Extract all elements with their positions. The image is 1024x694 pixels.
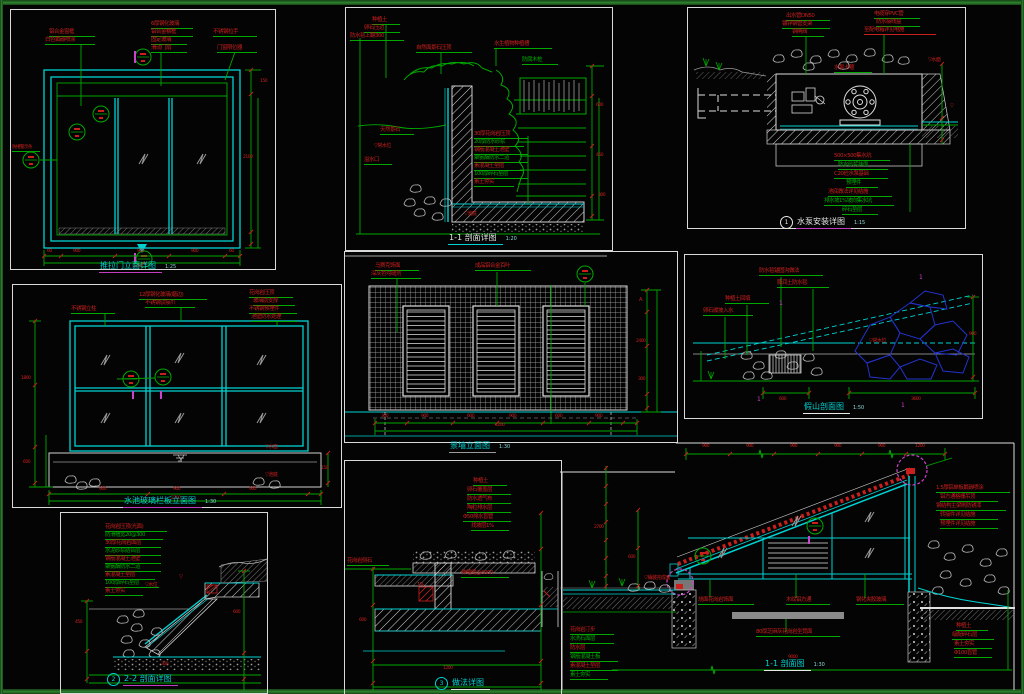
annotation-label: 钢结构主梁刷防锈漆 xyxy=(936,504,1006,511)
door-track xyxy=(59,228,225,234)
annotation-label: 900 xyxy=(173,488,180,493)
door-inner-frame xyxy=(40,44,235,235)
annotation-label: 60 xyxy=(229,250,234,255)
annotation-label: 防撞警示条 xyxy=(12,146,40,152)
suction-pipe-dashed xyxy=(698,95,776,111)
annotation-label: 花岗岩压顶(光面) xyxy=(105,525,167,532)
annotation-label: ▽ xyxy=(179,575,182,580)
annotation-label: A xyxy=(639,298,642,303)
annotation-label: 防水层 xyxy=(570,646,600,653)
annotation-label: 100厚碎石垫层 xyxy=(474,172,528,179)
annotation-label: 150 xyxy=(321,467,328,472)
annotation-label: 30厚花岗岩压顶 xyxy=(474,132,528,139)
title-scale: 1:30 xyxy=(205,499,216,505)
annotation-label: 450 xyxy=(596,154,603,159)
annotation-label: 1.5厚铝单板氟碳喷涂 xyxy=(936,486,1010,493)
annotation-label: 300 xyxy=(638,378,645,383)
annotation-label: 滑动门扇 xyxy=(151,46,187,53)
annotation-label: 600 xyxy=(779,398,786,403)
annotation-label: 12厚钢化玻璃(磨边) xyxy=(139,293,207,300)
annotation-label: 水泥砂浆结合层 xyxy=(105,549,161,556)
annotation-label: 出水管DN50 xyxy=(786,14,830,21)
annotation-label: 钢筋混凝土池壁 xyxy=(474,148,528,155)
panel-title-text: 1-1 剖面详图 xyxy=(448,232,503,245)
title-scale: 1:30 xyxy=(814,662,825,668)
annotation-label: 1200 xyxy=(915,445,924,450)
annotation-label: 花岗岩压顶 xyxy=(249,291,293,298)
anchor-trench xyxy=(769,355,801,373)
annotation-label: 防滑槽宽20@300 xyxy=(105,533,163,540)
partial-frame xyxy=(560,443,1014,690)
annotation-label: 碎石垫层 xyxy=(842,208,878,215)
annotation-label: 铝方通格栅吊顶 xyxy=(940,495,998,502)
annotation-label: 素土夯实 xyxy=(954,642,992,649)
annotation-label: 600 xyxy=(359,619,366,624)
panel-title: 假山剖面图1:50 xyxy=(803,401,864,414)
annotation-label: 150 xyxy=(260,80,267,85)
annotation-label: 80厚芝麻灰花岗岩坐凳面 xyxy=(756,630,840,637)
dims xyxy=(29,321,328,505)
annotation-label: 不锈钢拉手 xyxy=(213,30,257,37)
annotation-label: 900 xyxy=(137,250,144,255)
louver-slats xyxy=(768,543,828,568)
annotation-label: 素土夯实 xyxy=(570,673,608,680)
annotation-label: ▽水位 xyxy=(145,583,157,588)
pit-outline xyxy=(776,74,922,130)
annotation-label: ▽水面 xyxy=(265,445,277,450)
annotation-label: 自然面景石压顶 xyxy=(416,46,472,53)
annotation-label: 900 xyxy=(191,250,198,255)
detail-number-bubble: 2 xyxy=(107,673,120,686)
annotation-label: 预埋件 xyxy=(846,181,878,188)
panel-title: 推拉门立面详图1:25 xyxy=(99,260,176,273)
annotation-label: 素混凝土垫层 xyxy=(570,664,618,671)
panel-glass-screen-elevation: 不锈钢立柱12厚钢化玻璃(磨边)不锈钢驳接爪花岗岩压顶玻璃肋支撑不锈钢预埋件池壁… xyxy=(12,284,342,508)
screen-frame xyxy=(70,321,308,451)
panel-title-text: 假山剖面图 xyxy=(803,401,850,414)
annotation-label: ▽水面 xyxy=(928,58,940,63)
sloped-wall xyxy=(145,599,217,655)
annotation-label: 20厚防水砂浆 xyxy=(474,140,524,147)
annotation-label: 卵石缓坡入水 xyxy=(703,309,753,316)
annotation-label: 级配碎石层 xyxy=(952,633,994,640)
title-scale: 1:15 xyxy=(854,220,865,226)
title-scale: 1:30 xyxy=(499,444,510,450)
annotation-label: 成品铝合金百叶 xyxy=(475,264,531,271)
panel-title: 景墙立面图1:30 xyxy=(449,440,510,453)
annotation-label: 马赛克饰面 xyxy=(375,264,419,271)
annotation-label: 天然景石 xyxy=(380,128,414,135)
annotation-label: 水生植物种植槽 xyxy=(494,42,552,49)
annotation-label: 钢筋混凝土池壁 xyxy=(105,557,161,564)
annotation-label: 卵石压边 xyxy=(364,26,400,33)
annotation-label: 溢水口 xyxy=(364,158,392,165)
rockery-drawing xyxy=(685,255,982,418)
annotation-label: 白色氟碳喷涂 xyxy=(45,38,95,45)
annotation-label: ▽池底 xyxy=(464,212,476,217)
annotation-label: 电缆穿PVC管 xyxy=(874,12,920,19)
annotation-label: 铜闸阀 xyxy=(792,30,824,37)
subgrade xyxy=(375,609,541,631)
red-crosshatch xyxy=(419,587,433,601)
annotation-label: 防水砂浆抹面 xyxy=(838,163,888,170)
annotation-label: 卵石覆盖层 xyxy=(467,488,511,495)
annotation-label: 500×500集水坑 xyxy=(834,154,890,161)
annotation-label: 素土夯实 xyxy=(474,180,514,187)
annotation-label: 600 xyxy=(628,556,635,561)
panel-title-text: 做法详图 xyxy=(451,677,490,690)
annotation-label: 水洗石面层 xyxy=(570,637,614,644)
panel-rockery-section: 防水毯锚固沟做法膨润土防水毯种植土回填卵石缓坡入水▽常水位11116003600… xyxy=(684,254,983,419)
valve-fittings xyxy=(792,88,825,113)
annotation-label: 种植土 xyxy=(956,624,988,631)
louver-openings xyxy=(403,306,589,396)
annotation-label: 素土夯实 xyxy=(105,589,143,596)
title-scale: 1:50 xyxy=(853,405,864,411)
annotation-label: 素混凝土垫层 xyxy=(474,164,524,171)
annotation-label: 钢筋混凝土板 xyxy=(570,655,618,662)
cad-model-space[interactable]: 铝合金窗框白色氟碳喷涂6厚钢化玻璃铝合金横框固定玻璃滑动门扇不锈钢拉手门窗限位器… xyxy=(0,0,1024,694)
annotation-label: 种植土 xyxy=(473,479,507,486)
annotation-label: 聚氨酯防水二道 xyxy=(474,156,528,163)
dimension-lines xyxy=(44,70,261,266)
annotation-label: 600 xyxy=(23,461,30,466)
pump-drawing xyxy=(688,8,965,228)
water-symbol xyxy=(173,455,187,461)
glass-wall xyxy=(678,485,912,579)
annotation-label: 300 xyxy=(381,415,388,420)
mid-leaders xyxy=(710,574,865,598)
annotation-label: C20砼水泵基础 xyxy=(834,172,888,179)
annotation-label: 600 xyxy=(467,415,474,420)
annotation-label: 1800 xyxy=(21,377,30,382)
annotation-label: 聚氨酯防水二道 xyxy=(105,565,161,572)
annotation-label: 防水接线盒 xyxy=(876,20,920,27)
panel-sliding-door-elevation: 铝合金窗框白色氟碳喷涂6厚钢化玻璃铝合金横框固定玻璃滑动门扇不锈钢拉手门窗限位器… xyxy=(10,9,276,270)
panel-pergola-section: 90090090090090012001.5厚铝单板氟碳喷涂铝方通格栅吊顶钢结构… xyxy=(560,440,1016,692)
annotation-label: 池底做法详见结施 xyxy=(828,190,892,197)
annotation-label: 种植土回填 xyxy=(725,297,769,304)
annotation-label: 防水毯上翻300 xyxy=(350,34,404,41)
panel-planter-edge-detail: 种植土卵石覆盖层防水透气布陶粒排水层Φ50排水盲管找坡层1%花岗岩侧石伸缩缝@6… xyxy=(344,460,562,694)
annotation-label: 900 xyxy=(834,445,841,450)
panel-title-text: 景墙立面图 xyxy=(449,440,496,453)
panel-title: 1-1 剖面详图1:20 xyxy=(448,232,517,245)
annotation-label: 450 xyxy=(75,621,82,626)
rubble-stones xyxy=(404,185,451,220)
annotation-label: Φ50排水盲管 xyxy=(463,515,511,522)
annotation-label: 伸缩缝@6000 xyxy=(461,571,509,578)
annotation-label: 至配电箱详见电施 xyxy=(864,28,936,35)
panel-title-text: 2-2 剖面详图 xyxy=(123,673,178,686)
annotation-label: 门窗限位器 xyxy=(217,46,257,53)
panel-pond-wall-section: 种植土卵石压边防水毯上翻300自然面景石压顶水生植物种植槽防腐木桩30厚花岗岩压… xyxy=(345,7,613,251)
annotation-label: 900 xyxy=(746,445,753,450)
panel-title-text: 水泵安装详图 xyxy=(796,216,851,229)
detail-number-bubble: 3 xyxy=(435,677,448,690)
annotation-label: 900 xyxy=(99,488,106,493)
annotation-label: 花岗岩侧石 xyxy=(347,559,389,566)
panel-feature-wall-elevation: 马赛克饰面深灰色勾缝剂成品铝合金百叶A240030030090060090060… xyxy=(344,251,678,443)
annotation-label: 玻璃肋支撑 xyxy=(253,299,295,306)
annotation-label: 2700 xyxy=(594,526,603,531)
annotation-label: 2400 xyxy=(636,340,645,345)
detail-number-bubble: 1 xyxy=(780,216,793,229)
annotation-label: 1200 xyxy=(443,667,452,672)
annotation-label: Φ100盲管 xyxy=(954,651,992,658)
annotation-label: 防水透气布 xyxy=(467,497,511,504)
annotation-label: 烧面花岗岩饰面 xyxy=(698,598,754,605)
roof-tile-hatch xyxy=(678,475,909,564)
title-scale: 1:25 xyxy=(165,264,176,270)
panel-title: 1水泵安装详图1:15 xyxy=(780,216,865,229)
annotation-label: 600 xyxy=(233,611,240,616)
annotation-label: ▽常水位 xyxy=(374,144,391,149)
annotation-label: 不锈钢立柱 xyxy=(71,307,115,314)
panel-title: 3做法详图 xyxy=(435,677,490,690)
left-ground xyxy=(560,466,676,612)
annotation-label: 陶粒排水层 xyxy=(467,506,511,513)
panel-pump-installation: 出水管DN50镀锌钢管支架铜闸阀电缆穿PVC管防水接线盒至配电箱详见电施水泵卡箍… xyxy=(687,7,966,229)
annotation-label: 花岗岩汀步 xyxy=(570,628,614,635)
curb xyxy=(435,563,451,609)
annotation-label: 素混凝土垫层 xyxy=(105,573,155,580)
annotation-label: 6厚钢化玻璃 xyxy=(151,22,193,29)
annotation-label: 深灰色勾缝剂 xyxy=(371,272,421,279)
annotation-label: 预埋件详见结施 xyxy=(940,522,998,529)
panel-title-text: 1-1 剖面图 xyxy=(764,658,811,671)
annotation-label: 900 xyxy=(249,488,256,493)
stone-bench xyxy=(732,612,844,619)
annotation-label: 不锈钢驳接爪 xyxy=(145,301,195,308)
annotation-label: 膨润土防水毯 xyxy=(777,281,829,288)
panel-pool-edge-section: 花岗岩压顶(光面)防滑槽宽20@30030厚花岗岩面层水泥砂浆结合层钢筋混凝土池… xyxy=(60,512,268,694)
annotation-label: 900 xyxy=(969,333,976,338)
annotation-label: 木纹铝方通 xyxy=(786,598,830,605)
rubble xyxy=(117,610,162,657)
annotation-label: 300 xyxy=(598,194,605,199)
annotation-label: 1 xyxy=(901,403,904,409)
annotation-label: 1 xyxy=(757,397,760,403)
panel-title: 水池玻璃栏板立面图1:30 xyxy=(123,495,216,508)
annotation-label: 900 xyxy=(509,415,516,420)
annotation-label: 3600 xyxy=(911,398,920,403)
annotation-label: 钢化夹胶玻璃 xyxy=(856,598,904,605)
planter-edge-drawing xyxy=(345,461,561,694)
gravel-band xyxy=(113,659,261,670)
annotation-label: 900 xyxy=(595,415,602,420)
title-scale: 1:20 xyxy=(506,236,517,242)
annotation-label: 排水坡1%坡向集水坑 xyxy=(824,199,894,206)
annotation-label: 900 xyxy=(421,415,428,420)
dims xyxy=(763,297,979,399)
annotation-label: 池壁防水处理 xyxy=(251,315,297,322)
annotation-label: 900 xyxy=(702,445,709,450)
annotation-label: ▽ xyxy=(950,104,953,109)
panel-title-text: 推拉门立面详图 xyxy=(99,260,162,273)
sheet-frame-top xyxy=(0,0,1024,5)
annotation-label: 固定玻璃 xyxy=(151,38,187,45)
annotation-label: 种植土 xyxy=(372,18,400,25)
annotation-label: 2100 xyxy=(243,156,252,161)
annotation-label: 900 xyxy=(878,445,885,450)
annotation-label: 转接件详见结施 xyxy=(940,513,998,520)
annotation-label: 水泵卡箍 xyxy=(834,66,872,73)
annotation-label: 900 xyxy=(790,445,797,450)
blue-rock-outlines xyxy=(855,291,969,379)
annotation-label: 铝合金窗框 xyxy=(49,30,95,37)
annotation-label: 不锈钢预埋件 xyxy=(249,307,297,314)
pump-flange xyxy=(840,86,880,125)
annotation-label: 镀锌钢管支架 xyxy=(782,22,830,29)
annotation-label: 60 xyxy=(47,250,52,255)
annotation-label: 找坡层1% xyxy=(471,524,509,531)
panel-title: 1-1 剖面图1:30 xyxy=(764,658,825,671)
annotation-label: 铝合金横框 xyxy=(151,30,193,37)
panel-title: 22-2 剖面详图 xyxy=(107,673,178,686)
panel-title-text: 水池玻璃栏板立面图 xyxy=(123,495,202,508)
sheet-frame-left xyxy=(0,0,3,694)
annotation-label: 1 xyxy=(919,275,922,281)
annotation-label: 900 xyxy=(73,250,80,255)
annotation-label: ▽池底 xyxy=(265,473,277,478)
annotation-label: 600 xyxy=(596,104,603,109)
pit-wall-left xyxy=(767,74,776,130)
gravel-bed xyxy=(452,224,584,232)
annotation-label: 1 xyxy=(779,301,782,307)
annotation-label: 300 xyxy=(161,663,168,668)
annotation-label: ▽常水位 xyxy=(869,339,886,344)
annotation-label: 30厚花岗岩面层 xyxy=(105,541,161,548)
planting-strip xyxy=(524,80,579,112)
annotation-label: 600 xyxy=(555,415,562,420)
annotation-label: 1% xyxy=(417,583,424,588)
annotation-label: ▽铺装完成面 xyxy=(644,576,670,581)
annotation-label: 4200 xyxy=(495,424,504,429)
annotation-label: 防水毯锚固沟做法 xyxy=(759,269,823,276)
annotation-label: 防腐木桩 xyxy=(522,58,558,65)
